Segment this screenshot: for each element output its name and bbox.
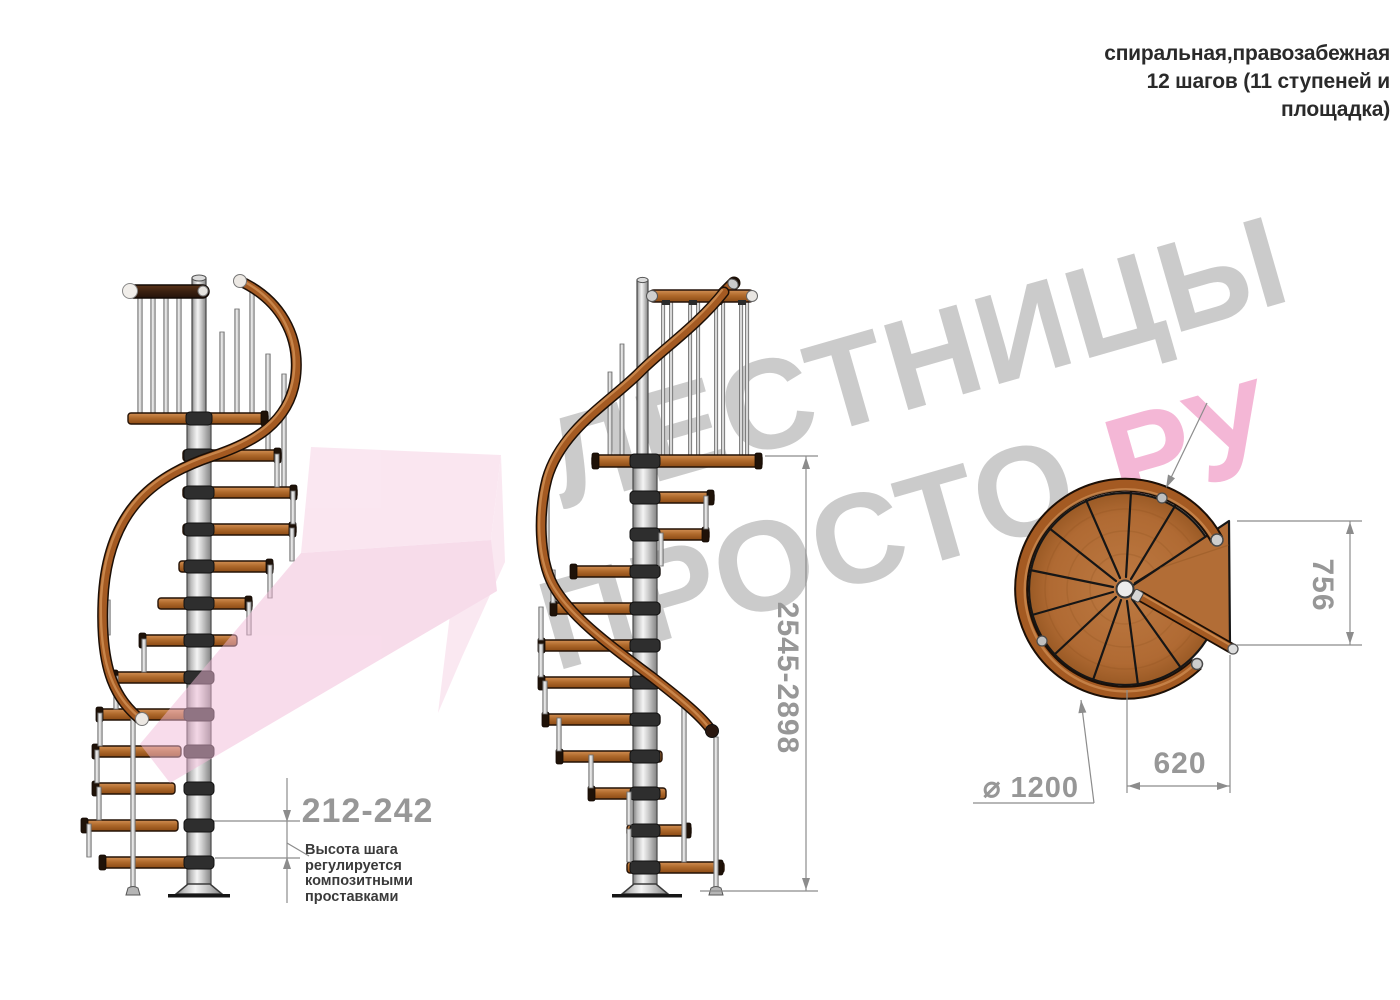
handrail-cap: [747, 291, 758, 302]
baluster: [627, 792, 631, 825]
baluster: [275, 454, 279, 487]
blueprint-canvas: ЛЕСТНИЦЫ ПРОСТО.РУ: [0, 0, 1400, 1000]
tread-balusters: [539, 484, 723, 895]
base-line: [612, 894, 682, 898]
baluster: [627, 829, 631, 862]
step-height-note: Высота шага регулируется композитными пр…: [305, 843, 435, 905]
dim-landing-depth: 620: [1120, 747, 1240, 781]
title-block: спиральная,правозабежная 12 шагов (11 ст…: [1050, 40, 1390, 124]
pole-lower: [187, 413, 211, 886]
pole-collar: [630, 454, 660, 468]
baluster: [138, 298, 142, 414]
baluster: [704, 496, 708, 529]
ring-sleeve: [1157, 493, 1167, 503]
handrail-end-cap: [706, 725, 719, 738]
dimension-756: [1237, 521, 1362, 645]
handrail-cap: [647, 291, 658, 302]
baluster: [722, 302, 725, 455]
baluster: [682, 707, 686, 862]
staircase-drawing: [0, 0, 1400, 1000]
baluster: [142, 639, 146, 672]
pole-collar: [184, 560, 214, 573]
pole-collar: [184, 597, 214, 610]
baluster: [282, 374, 286, 487]
pole-base-flange: [176, 884, 222, 894]
pole-collar: [630, 824, 660, 837]
side-view-2: [538, 277, 762, 897]
tread-collar: [592, 453, 599, 469]
ring-sleeve: [1037, 636, 1047, 646]
rail-joint: [662, 300, 670, 305]
baluster: [151, 298, 155, 414]
pole-collar: [630, 861, 660, 874]
tread-collar: [570, 564, 577, 579]
baluster: [97, 787, 101, 820]
baluster: [98, 713, 102, 746]
pole-base-flange: [622, 884, 668, 894]
handrail-leader: [1166, 403, 1207, 488]
baluster: [670, 302, 673, 455]
baluster: [95, 750, 99, 783]
center-pole-top: [1117, 581, 1134, 598]
pole-cap: [192, 275, 206, 281]
post-foot: [126, 887, 140, 896]
baluster: [291, 491, 295, 524]
title-line1: спиральная,правозабежная: [1050, 40, 1390, 68]
baluster: [290, 528, 294, 561]
handrail-cap: [198, 286, 208, 296]
pole-collar: [630, 750, 660, 763]
baluster: [746, 302, 749, 455]
pole-collar: [630, 639, 660, 652]
pole-collar: [184, 856, 214, 869]
baluster: [87, 824, 91, 857]
dim-step-height: 212-242: [300, 792, 435, 831]
pole-collar: [184, 486, 214, 499]
pole-collar: [184, 819, 214, 832]
rail-joint: [689, 300, 697, 305]
tread: [82, 820, 178, 831]
base-line: [168, 894, 230, 898]
pole-collar: [186, 412, 212, 425]
handrail-cap: [136, 713, 149, 726]
handrail-cap: [1228, 644, 1238, 654]
baluster: [235, 309, 239, 413]
pole-collar: [184, 523, 214, 536]
dim-diameter: ⌀ 1200: [965, 770, 1097, 805]
pole-cap: [637, 277, 648, 282]
baluster: [662, 302, 665, 455]
tread-collar: [99, 855, 106, 870]
baluster: [220, 332, 224, 413]
handrail-cap: [234, 275, 247, 288]
title-line2: 12 шагов (11 ступеней и: [1050, 68, 1390, 96]
pole-collar: [630, 713, 660, 726]
side-view-1: [81, 275, 300, 898]
plan-view: [1021, 485, 1238, 693]
pole-collar: [184, 782, 214, 795]
ring-end-cap: [1211, 534, 1223, 546]
baluster: [539, 644, 543, 677]
dim-landing-width: 756: [1305, 500, 1339, 670]
baluster: [164, 298, 168, 414]
landing-balustrade: [608, 277, 758, 455]
baluster: [659, 533, 663, 566]
ring-end-cap: [1192, 659, 1203, 670]
pole-upper: [192, 278, 206, 418]
pole-collar: [630, 491, 660, 504]
baluster: [608, 372, 612, 455]
pole-collar: [630, 528, 660, 541]
baluster: [539, 607, 543, 640]
baluster: [543, 681, 547, 714]
baluster: [557, 718, 561, 751]
support-post: [131, 709, 135, 889]
support-post: [714, 737, 718, 889]
landing-handrail: [127, 285, 209, 298]
arrow-facet: [301, 447, 501, 553]
dim-total-height: 2545-2898: [770, 593, 804, 763]
handrail-ball-finial: [123, 284, 138, 299]
baluster: [620, 344, 624, 455]
baluster: [250, 291, 254, 413]
tread-collar: [755, 453, 762, 469]
pole-collar: [630, 602, 660, 615]
pole-collar: [184, 634, 214, 647]
pole-collar: [630, 787, 660, 800]
landing-platform: [592, 455, 762, 467]
rail-joint: [738, 300, 746, 305]
title-line3: площадка): [1050, 96, 1390, 124]
baluster: [740, 302, 743, 455]
baluster: [177, 298, 181, 414]
baluster: [715, 302, 718, 455]
baluster: [589, 755, 593, 788]
pole-collar: [630, 565, 660, 578]
